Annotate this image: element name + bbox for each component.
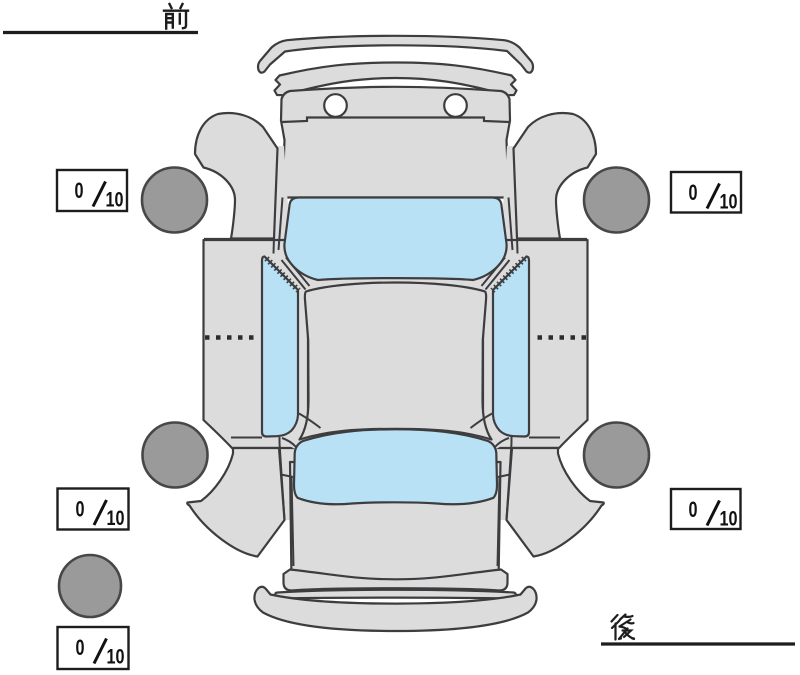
svg-text:0: 0 xyxy=(75,178,84,203)
svg-text:10: 10 xyxy=(106,188,124,212)
